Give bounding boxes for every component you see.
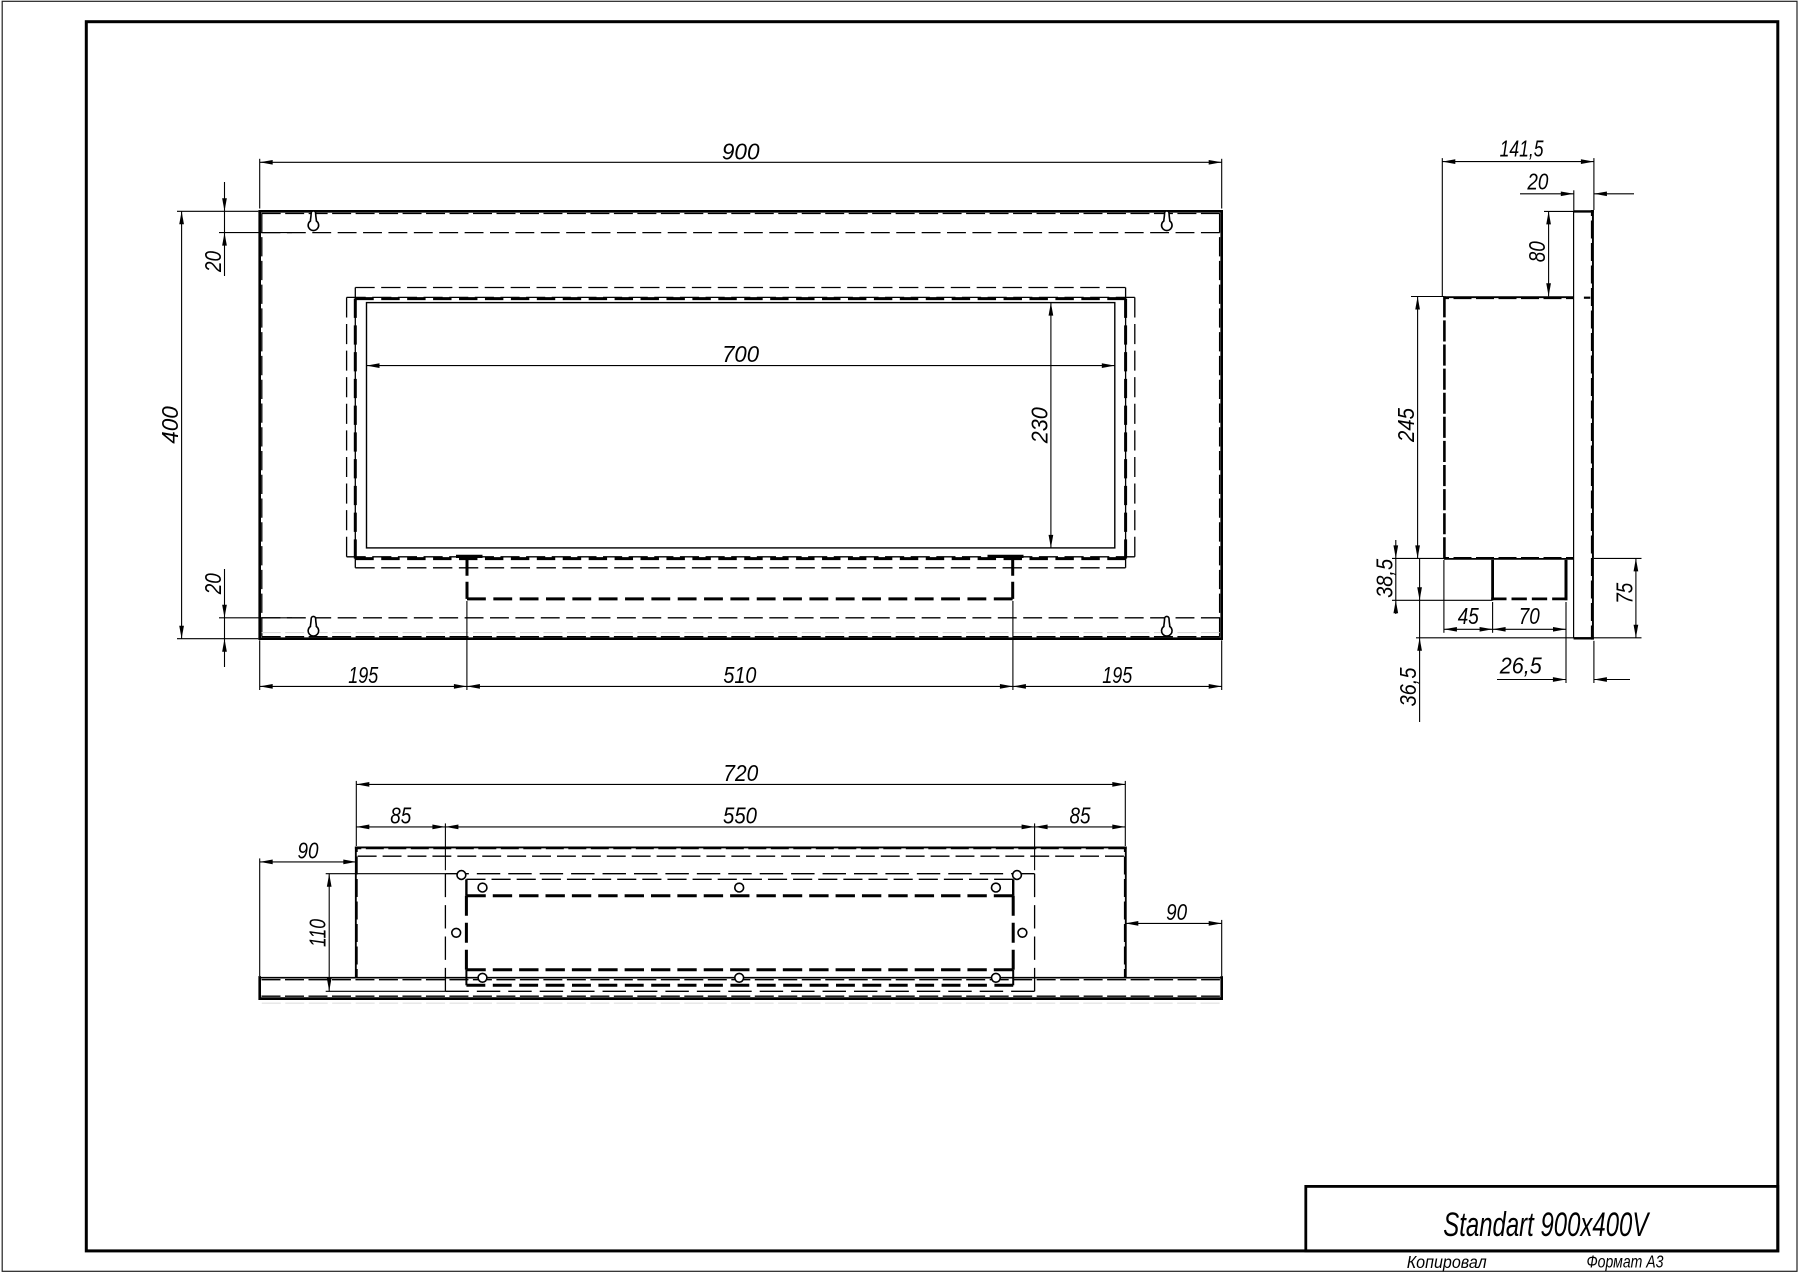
svg-text:195: 195	[348, 662, 378, 688]
svg-text:45: 45	[1458, 603, 1479, 629]
svg-text:20: 20	[200, 573, 226, 595]
svg-text:110: 110	[305, 919, 331, 947]
svg-text:510: 510	[723, 662, 756, 688]
svg-text:400: 400	[157, 406, 183, 444]
svg-text:26,5: 26,5	[1499, 652, 1542, 678]
svg-text:80: 80	[1524, 241, 1550, 262]
svg-text:900: 900	[722, 138, 760, 164]
svg-text:20: 20	[200, 251, 226, 273]
svg-text:20: 20	[1527, 169, 1549, 195]
svg-text:85: 85	[1070, 802, 1091, 828]
svg-text:90: 90	[1166, 899, 1187, 925]
svg-text:141,5: 141,5	[1500, 136, 1544, 162]
svg-text:70: 70	[1519, 603, 1540, 629]
svg-text:38,5: 38,5	[1371, 559, 1397, 598]
svg-text:Копировал: Копировал	[1407, 1252, 1487, 1272]
svg-text:85: 85	[390, 802, 411, 828]
svg-text:230: 230	[1026, 407, 1052, 444]
svg-text:Формат А3: Формат А3	[1587, 1251, 1664, 1271]
svg-text:195: 195	[1102, 662, 1132, 688]
svg-text:550: 550	[723, 802, 757, 828]
svg-text:90: 90	[298, 837, 319, 863]
svg-text:245: 245	[1393, 408, 1419, 443]
svg-text:75: 75	[1611, 583, 1637, 604]
svg-text:36,5: 36,5	[1395, 667, 1421, 706]
svg-text:720: 720	[723, 760, 758, 786]
svg-text:700: 700	[722, 341, 759, 367]
svg-text:Standart 900x400V: Standart 900x400V	[1443, 1206, 1650, 1244]
